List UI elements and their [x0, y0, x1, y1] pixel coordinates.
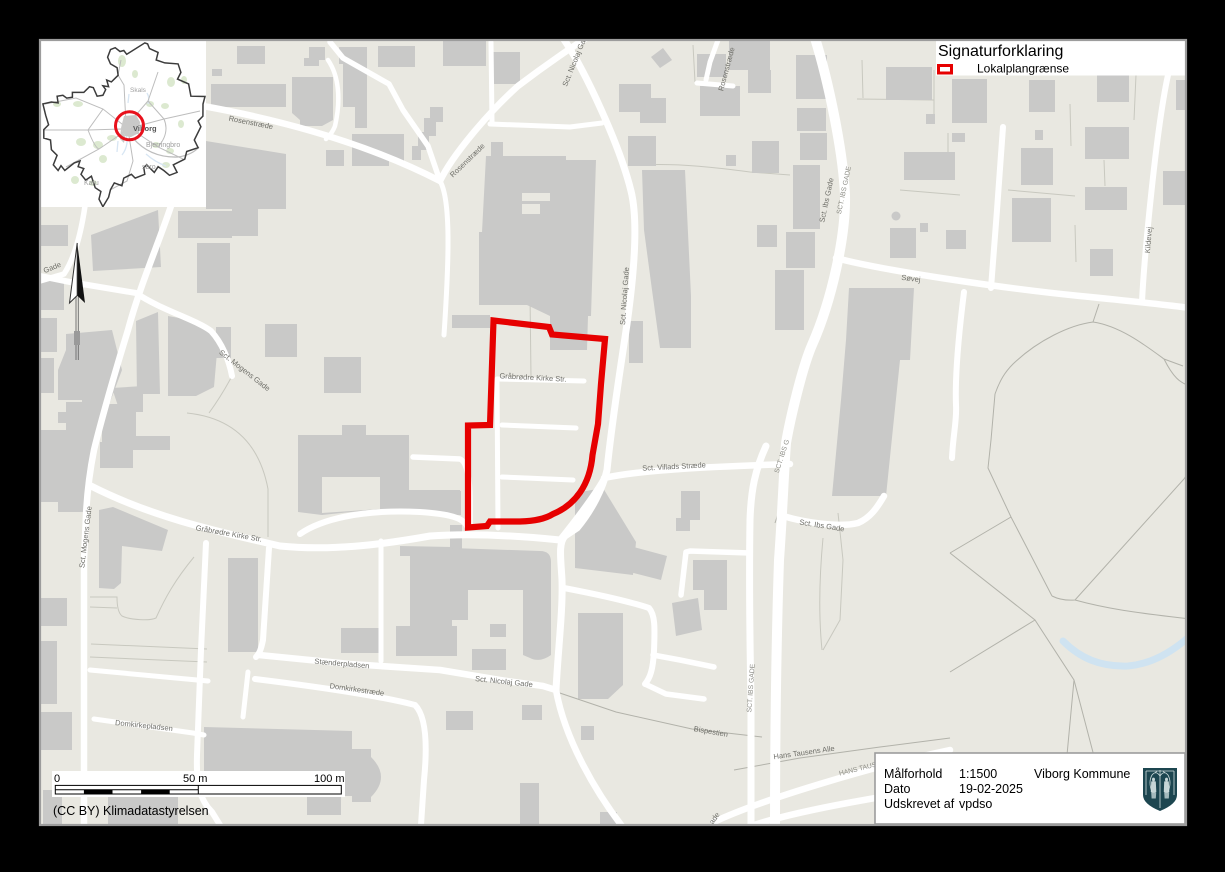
svg-text:Udskrevet af: Udskrevet af — [884, 797, 955, 811]
svg-text:Viborg: Viborg — [133, 124, 157, 133]
svg-text:Skals: Skals — [130, 87, 147, 94]
svg-text:0: 0 — [54, 773, 60, 785]
svg-text:Lokalplangrænse: Lokalplangrænse — [977, 62, 1069, 76]
svg-text:50 m: 50 m — [183, 773, 207, 785]
svg-text:(CC BY) Klimadatastyrelsen: (CC BY) Klimadatastyrelsen — [53, 804, 209, 818]
svg-text:1:1500: 1:1500 — [959, 767, 997, 781]
svg-text:Karu: Karu — [84, 180, 99, 187]
svg-text:Bjerringbro: Bjerringbro — [146, 142, 180, 149]
svg-text:Signaturforklaring: Signaturforklaring — [938, 43, 1063, 60]
svg-text:Dato: Dato — [884, 782, 910, 796]
svg-text:100 m: 100 m — [314, 773, 345, 785]
svg-text:Viborg Kommune: Viborg Kommune — [1034, 767, 1130, 781]
svg-text:vpdso: vpdso — [959, 797, 992, 811]
svg-text:19-02-2025: 19-02-2025 — [959, 782, 1023, 796]
svg-text:Målforhold: Målforhold — [884, 767, 942, 781]
svg-text:sbro: sbro — [142, 164, 156, 171]
